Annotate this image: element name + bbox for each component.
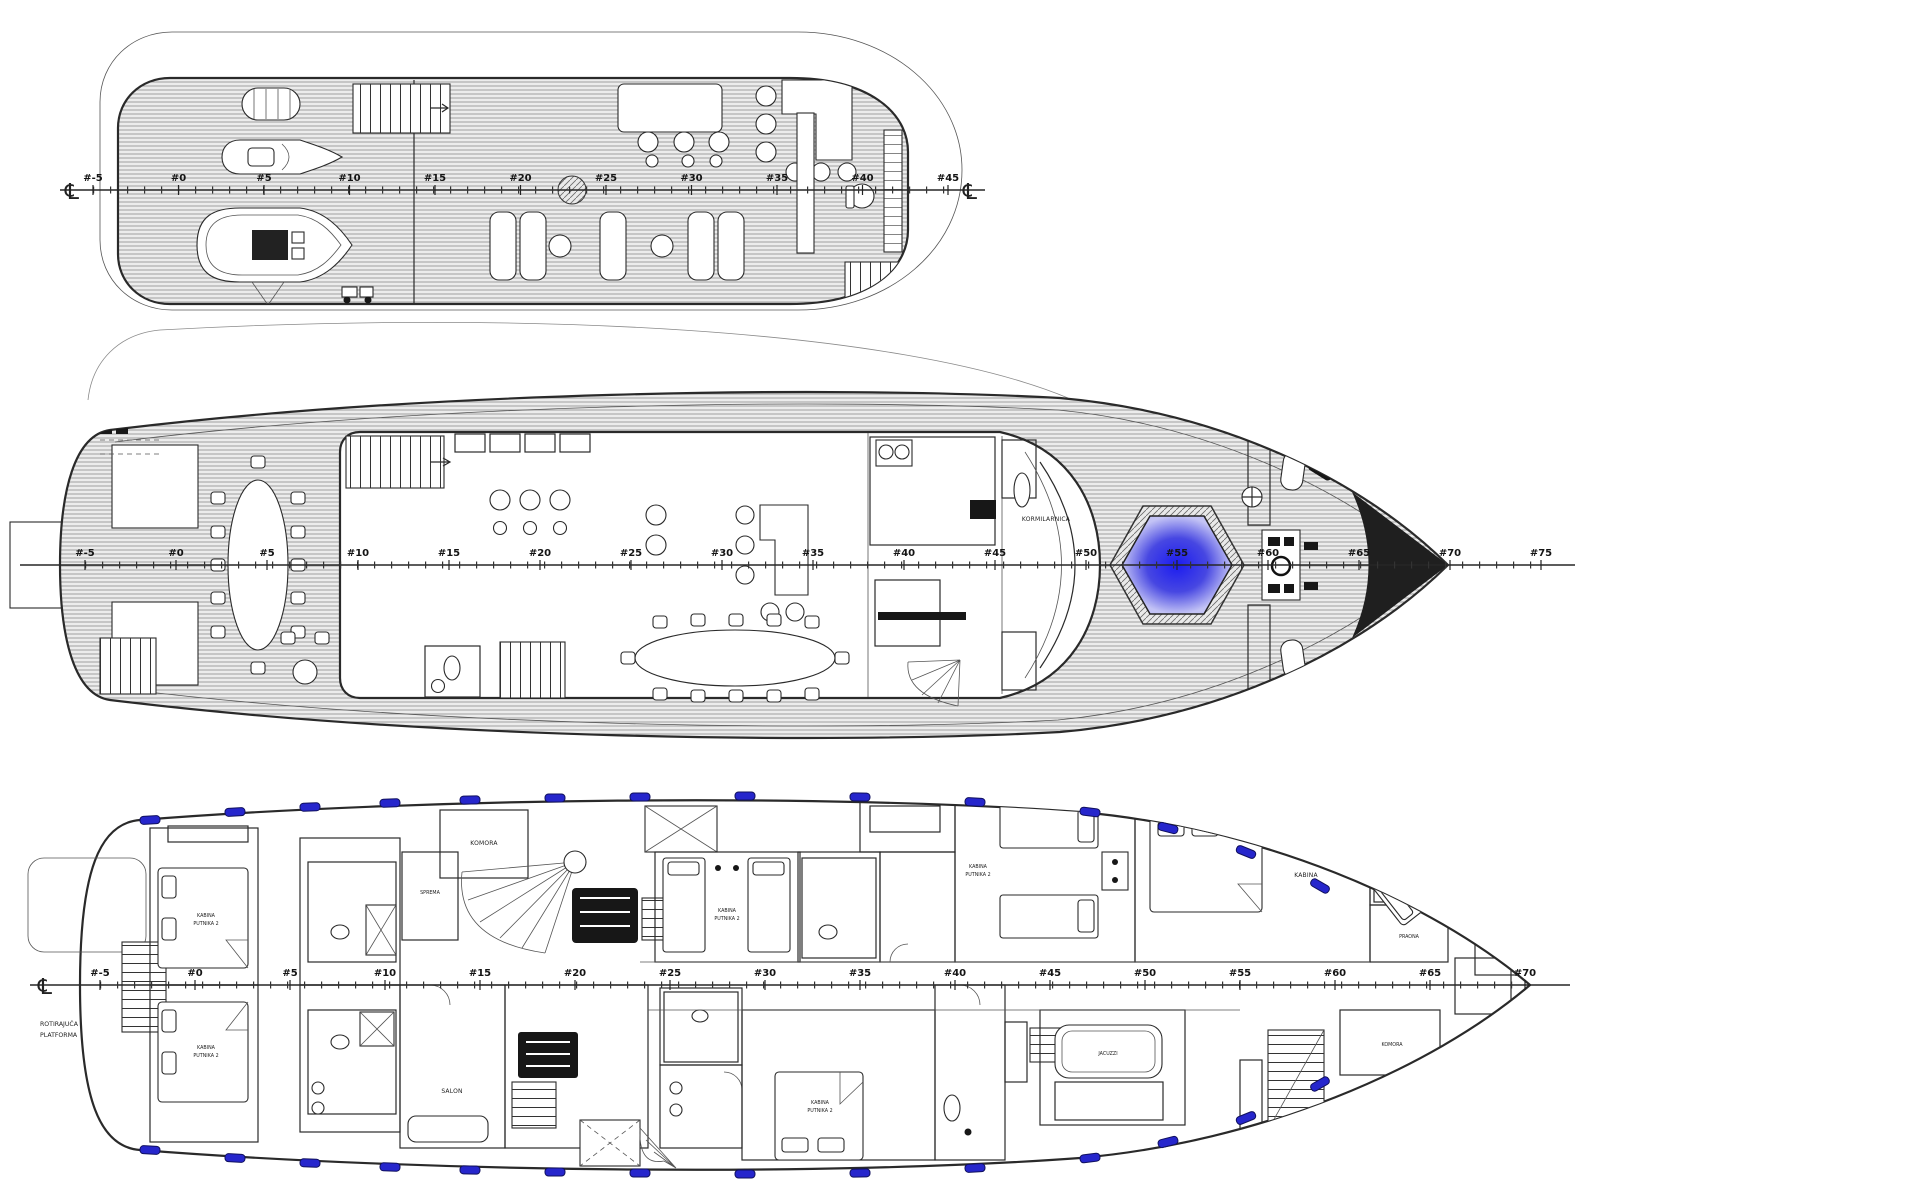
porthole [225,1153,245,1162]
stairs-down [500,642,565,698]
bathroom-bow-starboard [1355,1100,1420,1165]
cabin-label: PUTNIKA 2 [807,1108,832,1114]
porthole [380,799,400,808]
porthole [460,796,480,804]
station-label: #5 [259,548,274,559]
station-label: #10 [347,548,369,559]
porthole [850,793,870,801]
porthole [1080,1153,1101,1163]
cabin-label: PUTNIKA 2 [193,1053,218,1059]
station-label: #65 [1419,968,1441,979]
kabina-label: KABINA [1294,872,1318,879]
station-label: #0 [168,548,183,559]
main-deck: KORMILARNICA [10,322,1575,738]
station-label: #65 [1348,548,1370,559]
porthole [735,792,755,800]
station-label: #45 [1039,968,1061,979]
cabin-label: KABINA [1416,864,1434,880]
station-label: #60 [1324,968,1346,979]
station-label: #55 [1166,548,1188,559]
deckhouse: KORMILARNICA [340,432,1100,706]
station-label: #-5 [83,173,103,184]
porthole [735,1170,755,1178]
station-label: #60 [1257,548,1279,559]
cabin-label: PUTNIKA 2 [1418,869,1442,889]
crew-cabin-label: POSADE [1445,1082,1462,1101]
station-label: #40 [944,968,966,979]
station-label: #-5 [90,968,110,979]
porthole [850,1169,870,1177]
station-label: #30 [711,548,733,559]
station-label: #40 [851,173,873,184]
porthole [225,807,245,816]
station-label: #15 [438,548,460,559]
cabin-label: KABINA [197,1045,216,1051]
station-label: #50 [1134,968,1156,979]
station-label: #70 [1439,548,1461,559]
crew-cabin-label: KABINA [1486,1040,1503,1058]
rotating-platform-label: ROTIRAJUĆA PLATFORMA [40,1019,79,1039]
station-label: #25 [620,548,642,559]
life-raft [242,88,300,120]
porthole [300,1159,320,1168]
centerline-symbol: ℄ [962,180,978,205]
sun-deck: ℄ ℄ #-5#0#5#10#15#20#25#30#35#40#45 [60,32,985,310]
station-label: #20 [564,968,586,979]
station-label: #0 [187,968,202,979]
jacuzzi-label: JACUZZI [1097,1051,1117,1057]
station-label: #5 [256,173,271,184]
station-label: #55 [1229,968,1251,979]
porthole [545,1168,565,1176]
porthole [140,815,160,824]
station-label: #0 [171,173,186,184]
porthole [140,1145,160,1154]
porthole [545,794,565,802]
crew-cabin-label: KABINA [1440,1078,1457,1096]
cabin-label: PUTNIKA 2 [193,921,218,927]
bow-port-stairs [1470,862,1510,902]
platform-label-line2: PLATFORMA [40,1032,78,1039]
station-label: #20 [529,548,551,559]
cabin-label: KABINA [197,913,216,919]
porthole [630,1169,650,1177]
station-label: #20 [509,173,531,184]
crew-cabin-label: POSADE [1491,1044,1508,1063]
station-label: #35 [766,173,788,184]
station-label: #30 [680,173,702,184]
cabin-label: KABINA [718,908,737,914]
station-label: #75 [1530,548,1552,559]
station-label: #40 [893,548,915,559]
engine-vent-hatch [645,806,717,852]
station-label: #10 [338,173,360,184]
interior-stairs [346,436,450,488]
station-label: #35 [849,968,871,979]
crew-cabin-a: KABINA POSADE [1408,1050,1488,1133]
yacht-deck-plans: ℄ ℄ #-5#0#5#10#15#20#25#30#35#40#45 [0,0,1920,1194]
salon-label: SALON [441,1088,462,1095]
praona-label: PRAONA [1399,934,1420,940]
wheelhouse-label: KORMILARNICA [1022,516,1071,523]
station-label: #30 [754,968,776,979]
porthole [965,797,985,806]
platform-label-line1: ROTIRAJUĆA [40,1019,79,1028]
station-label: #50 [1075,548,1097,559]
bar-counter [618,84,722,132]
centerline-symbol: ℄ [64,180,80,205]
komora-label: KOMORA [470,840,498,847]
aft-stairs [845,262,905,302]
centerline-symbol: ℄ [37,975,53,1000]
cabin-label: KABINA [811,1100,830,1106]
komora-label: KOMORA [1382,1042,1404,1048]
stairs-sundeck [353,84,450,133]
deck-overhang-line [160,322,1068,398]
porthole [630,793,650,801]
porthole [300,803,320,812]
sprema-label: SPREMA [420,890,440,896]
station-label: #70 [1514,968,1536,979]
deck-overhang-line-aft [88,330,160,400]
station-label: #10 [374,968,396,979]
sprema-label: SPREMA [1304,1151,1324,1157]
skylight [797,113,814,253]
lower-deck: KABINA PUTNIKA 2 KABINA PUTNIKA 2 [28,792,1570,1178]
station-label: #15 [424,173,446,184]
cabin-label: KABINA [969,864,988,870]
cabin-label: PUTNIKA 2 [714,916,739,922]
sun-loungers [490,212,744,280]
station-label: #45 [937,173,959,184]
deck-plan-drawing: ℄ ℄ #-5#0#5#10#15#20#25#30#35#40#45 [0,0,1920,1194]
porthole [965,1163,985,1172]
porthole [460,1166,480,1174]
station-label: #35 [802,548,824,559]
cabin-label: PUTNIKA 2 [965,872,990,878]
stern-stairs [100,638,156,694]
station-label: #15 [469,968,491,979]
station-label: #25 [595,173,617,184]
station-label: #25 [659,968,681,979]
station-label: #-5 [75,548,95,559]
station-label: #45 [984,548,1006,559]
porthole [1080,807,1101,817]
porthole [380,1163,400,1172]
skylight-hatch-starboard [580,1120,640,1166]
station-label: #5 [282,968,297,979]
bathroom-fwd-port [1370,805,1448,905]
